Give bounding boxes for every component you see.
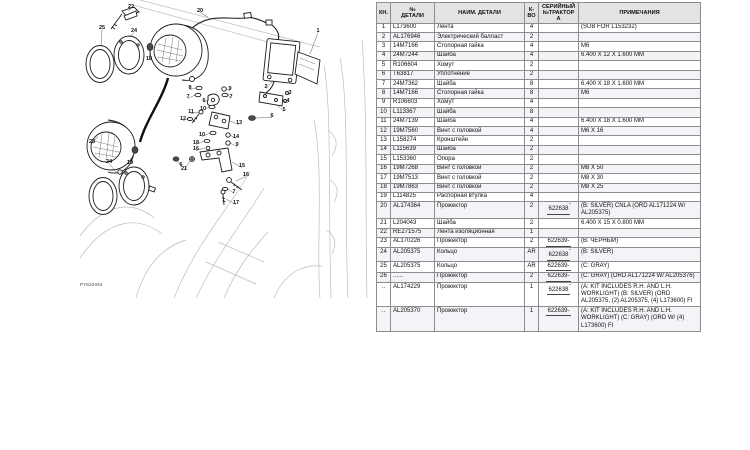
cell-part-number: AL176946	[391, 33, 435, 42]
table-row: 20AL174364Прожектор2-622638(B: SILVER) C…	[377, 202, 701, 219]
callout-leader	[101, 30, 102, 47]
cell-key: 23	[377, 237, 391, 247]
callout-16: 16	[243, 172, 249, 178]
cell-key: 1	[377, 23, 391, 32]
table-row: 15L153360Опора2	[377, 155, 701, 164]
cell-note: 6.400 X 12 X 1.600 MM	[579, 51, 701, 60]
cell-part-number: 19M7513	[391, 174, 435, 183]
cell-serial	[539, 61, 579, 70]
cell-part-name: Хомут	[435, 98, 525, 107]
cell-serial	[539, 33, 579, 42]
callout-12: 12	[180, 116, 186, 122]
cell-serial	[539, 23, 579, 32]
cell-key: 10	[377, 108, 391, 117]
cell-part-number: L114825	[391, 192, 435, 201]
table-row: 1619M7268Винт с головкой2M8 X 50	[377, 164, 701, 173]
cell-note: (C: GRAY) (ORD AL171224 W/ AL205376)	[579, 272, 701, 282]
callout-24: 24	[106, 159, 113, 165]
cell-key: 20	[377, 202, 391, 219]
cell-part-number: L153360	[391, 155, 435, 164]
cell-part-name: Винт с головкой	[435, 127, 525, 136]
cell-key: 6	[377, 70, 391, 79]
cell-serial: 622639-	[539, 272, 579, 282]
cell-qty: 2	[525, 136, 539, 145]
callout-3: 3	[288, 90, 291, 96]
cell-key: 9	[377, 98, 391, 107]
cell-part-number: ......	[391, 272, 435, 282]
cell-qty: 1	[525, 307, 539, 331]
callout-8: 8	[188, 85, 191, 91]
callout-9: 9	[235, 142, 238, 148]
callout-6: 6	[270, 113, 273, 119]
cell-part-number: 24M7139	[391, 117, 435, 126]
callout-1: 1	[316, 28, 319, 34]
cell-qty: 2	[525, 145, 539, 154]
mount-plate	[249, 92, 289, 121]
table-row: 2AL176946Электрический балласт2	[377, 33, 701, 42]
callout-24: 24	[131, 28, 138, 34]
cell-key: 15	[377, 155, 391, 164]
table-row: 10L113367Шайба8	[377, 108, 701, 117]
cell-note: M8 X 50	[579, 164, 701, 173]
cell-qty: 8	[525, 108, 539, 117]
table-row: 1219M7560Винт с головкой4M6 X 16	[377, 127, 701, 136]
cell-serial	[539, 192, 579, 201]
cell-note: (SUB FOR L153232)	[579, 23, 701, 32]
cell-serial	[539, 108, 579, 117]
table-row: 6T63817Уплотнение2	[377, 70, 701, 79]
callout-22: 22	[128, 4, 134, 10]
cell-key: 16	[377, 164, 391, 173]
bezel-ring-upper	[86, 36, 144, 83]
parts-table: КН. № ДЕТАЛИ НАИМ. ДЕТАЛИ К- ВО СЕРИЙНЫЙ…	[376, 2, 701, 332]
cell-key: 7	[377, 80, 391, 89]
cell-key: ..	[377, 283, 391, 307]
cell-part-number: T63817	[391, 70, 435, 79]
header-serial: СЕРИЙНЫЙ №ТРАКТОРА	[539, 3, 579, 24]
cell-serial	[539, 145, 579, 154]
cell-note: 6.400 X 18 X 1.600 MM	[579, 80, 701, 89]
cell-note	[579, 61, 701, 70]
callout-10: 10	[199, 132, 205, 138]
cell-note	[579, 108, 701, 117]
table-row: 19L114825Распорная втулка4	[377, 192, 701, 201]
cell-part-name: Хомут	[435, 61, 525, 70]
cell-key: 3	[377, 42, 391, 51]
callout-6: 6	[202, 98, 205, 104]
cell-part-name: Прожектор	[435, 202, 525, 219]
cell-serial	[539, 183, 579, 192]
callout-15: 15	[239, 163, 245, 169]
cell-part-name: Кольцо	[435, 248, 525, 262]
cell-serial: -622638	[539, 248, 579, 262]
cell-qty: 2	[525, 164, 539, 173]
cell-part-number: 24M7362	[391, 80, 435, 89]
cell-note: (A: KIT INCLUDES R.H. AND L.H. WORKLIGHT…	[579, 283, 701, 307]
table-row: 22RE271575Лента изоляционная1	[377, 228, 701, 237]
cell-part-name: Шайба	[435, 117, 525, 126]
cell-part-number: 24M7244	[391, 51, 435, 60]
cell-part-name: Прожектор	[435, 283, 525, 307]
cell-serial: -622638	[539, 283, 579, 307]
table-row: 1819M7863Винт с головкой2M8 X 25	[377, 183, 701, 192]
cell-qty: 4	[525, 192, 539, 201]
callout-7: 7	[229, 94, 232, 100]
cell-qty: 2	[525, 202, 539, 219]
worklight-upper	[147, 24, 208, 82]
cell-part-name: Винт с головкой	[435, 174, 525, 183]
table-row: 21L204043Шайба26.400 X 15 X 0.800 MM	[377, 219, 701, 228]
cell-key: 13	[377, 136, 391, 145]
cell-part-name: Электрический балласт	[435, 33, 525, 42]
table-row: 814M7166Стопорная гайка8M6	[377, 89, 701, 98]
cell-part-number: R106604	[391, 61, 435, 70]
cell-serial	[539, 80, 579, 89]
callout-4: 4	[286, 98, 290, 104]
cell-serial	[539, 155, 579, 164]
table-row: 1719M7513Винт с головкой2M8 X 30	[377, 174, 701, 183]
cell-part-number: R106603	[391, 98, 435, 107]
cell-part-number: AL205375	[391, 262, 435, 272]
fastener-stack	[173, 86, 242, 205]
cell-part-number: L173600	[391, 23, 435, 32]
cell-part-name: Шайба	[435, 219, 525, 228]
cell-qty: 2	[525, 61, 539, 70]
cell-note: (C: GRAY)	[579, 262, 701, 272]
cell-note: (B: SILVER) CNLA (ORD AL171224 W/ AL2053…	[579, 202, 701, 219]
cell-part-number: L113367	[391, 108, 435, 117]
cell-note	[579, 70, 701, 79]
image-code: PY622064	[80, 282, 103, 287]
cell-part-number: 19M7268	[391, 164, 435, 173]
cell-part-name: Шайба	[435, 145, 525, 154]
cell-part-number: AL205375	[391, 248, 435, 262]
cell-serial: 622639-	[539, 237, 579, 247]
cell-key: 11	[377, 117, 391, 126]
cell-part-name: Кольцо	[435, 262, 525, 272]
header-part-name: НАИМ. ДЕТАЛИ	[435, 3, 525, 24]
callout-21: 21	[181, 166, 187, 172]
cell-qty: 8	[525, 80, 539, 89]
callout-17: 17	[233, 200, 239, 206]
cell-qty: 8	[525, 89, 539, 98]
callout-10: 10	[200, 106, 206, 112]
cell-part-number: AL174229	[391, 283, 435, 307]
table-row: 13L158274Кронштейн2	[377, 136, 701, 145]
cell-part-name: Винт с головкой	[435, 164, 525, 173]
cell-part-name: Уплотнение	[435, 70, 525, 79]
table-row: 5R106604Хомут2	[377, 61, 701, 70]
cell-qty: 4	[525, 117, 539, 126]
cell-part-number: 19M7560	[391, 127, 435, 136]
cell-part-number: L115639	[391, 145, 435, 154]
cell-part-name: Прожектор	[435, 237, 525, 247]
cell-serial: -622638	[539, 202, 579, 219]
cell-part-name: Лента	[435, 23, 525, 32]
header-part-number: № ДЕТАЛИ	[391, 3, 435, 24]
cell-note	[579, 136, 701, 145]
ballast-panel	[295, 52, 320, 84]
cell-note: M6	[579, 42, 701, 51]
table-row: 424M7244Шайба46.400 X 12 X 1.600 MM	[377, 51, 701, 60]
cell-part-number: 19M7863	[391, 183, 435, 192]
cell-key: 18	[377, 183, 391, 192]
table-row: 24AL205375КольцоAR-622638(B: SILVER)	[377, 248, 701, 262]
table-row: 1124M7139Шайба46.400 X 18 X 1.600 MM	[377, 117, 701, 126]
cell-part-name: Прожектор	[435, 307, 525, 331]
cell-part-name: Стопорная гайка	[435, 42, 525, 51]
cell-part-name: Опора	[435, 155, 525, 164]
table-row: 23AL170226Прожектор2622639-(B: ЧЕРНЫЙ)	[377, 237, 701, 247]
cell-key: 5	[377, 61, 391, 70]
cell-note: 6.400 X 15 X 0.800 MM	[579, 219, 701, 228]
callout-20: 20	[197, 8, 203, 14]
callout-9: 9	[228, 86, 231, 92]
cell-qty: 2	[525, 33, 539, 42]
table-row: 314M7166Стопорная гайка4M6	[377, 42, 701, 51]
table-row: 26......Прожектор2622639-(C: GRAY) (ORD …	[377, 272, 701, 282]
cell-key: 4	[377, 51, 391, 60]
cell-qty: 2	[525, 155, 539, 164]
cell-part-number: RE271575	[391, 228, 435, 237]
cell-note: (B: SILVER)	[579, 248, 701, 262]
table-row: ..AL174229Прожектор1-622638(A: KIT INCLU…	[377, 283, 701, 307]
callout-25: 25	[99, 25, 105, 31]
header-notes: ПРИМЕЧАНИЯ	[579, 3, 701, 24]
cell-part-name: Стопорная гайка	[435, 89, 525, 98]
table-header-row: КН. № ДЕТАЛИ НАИМ. ДЕТАЛИ К- ВО СЕРИЙНЫЙ…	[377, 3, 701, 24]
callout-19: 19	[146, 56, 152, 62]
cell-part-name: Прожектор	[435, 272, 525, 282]
cell-key: 8	[377, 89, 391, 98]
callout-16: 16	[193, 146, 199, 152]
cell-key: 2	[377, 33, 391, 42]
cell-qty: 1	[525, 228, 539, 237]
cell-key: 25	[377, 262, 391, 272]
cell-qty: 2	[525, 174, 539, 183]
cell-note: (B: ЧЕРНЫЙ)	[579, 237, 701, 247]
cell-serial	[539, 228, 579, 237]
callout-19: 19	[127, 160, 133, 166]
cell-serial	[539, 98, 579, 107]
cell-key: 24	[377, 248, 391, 262]
callout-2: 2	[264, 84, 267, 90]
table-row: 25AL205375КольцоAR622639-(C: GRAY)	[377, 262, 701, 272]
cell-key: 14	[377, 145, 391, 154]
cell-key: 21	[377, 219, 391, 228]
callout-7: 7	[186, 94, 189, 100]
callout-23: 23	[89, 139, 95, 145]
cell-note: M8 X 30	[579, 174, 701, 183]
cell-serial	[539, 219, 579, 228]
cell-note: (A: KIT INCLUDES R.H. AND L.H. WORKLIGHT…	[579, 307, 701, 331]
cell-serial: 622639-	[539, 262, 579, 272]
cell-qty: 2	[525, 272, 539, 282]
cell-note: M6 X 16	[579, 127, 701, 136]
cell-qty: 2	[525, 70, 539, 79]
cell-part-name: Шайба	[435, 51, 525, 60]
cell-serial	[539, 164, 579, 173]
cell-qty: 2	[525, 183, 539, 192]
cell-note	[579, 33, 701, 42]
cell-key: 12	[377, 127, 391, 136]
cell-qty: 4	[525, 51, 539, 60]
cell-note: M6	[579, 89, 701, 98]
cell-key: ..	[377, 307, 391, 331]
cell-key: 26	[377, 272, 391, 282]
cell-part-name: Кронштейн	[435, 136, 525, 145]
cell-serial	[539, 127, 579, 136]
cell-qty: 2	[525, 237, 539, 247]
callout-leader	[310, 33, 318, 55]
cell-part-number: L158274	[391, 136, 435, 145]
cell-serial	[539, 89, 579, 98]
cell-part-number: AL174364	[391, 202, 435, 219]
callout-11: 11	[188, 109, 194, 115]
worklight-lower	[87, 120, 138, 174]
header-key: КН.	[377, 3, 391, 24]
table-row: ..AL205370Прожектор1622639-(A: KIT INCLU…	[377, 307, 701, 331]
callout-14: 14	[233, 134, 240, 140]
cell-key: 22	[377, 228, 391, 237]
cell-note	[579, 98, 701, 107]
cell-qty: 2	[525, 219, 539, 228]
cell-key: 17	[377, 174, 391, 183]
cell-note: M8 X 25	[579, 183, 701, 192]
cell-note	[579, 192, 701, 201]
exploded-view-diagram: 2220252419123456897761011121310149181662…	[78, 0, 378, 300]
callout-5: 5	[282, 107, 285, 113]
cell-part-name: Лента изоляционная	[435, 228, 525, 237]
cell-part-name: Шайба	[435, 80, 525, 89]
cell-qty: 4	[525, 127, 539, 136]
cell-serial	[539, 174, 579, 183]
callout-7: 7	[232, 189, 235, 195]
cell-part-number: L204043	[391, 219, 435, 228]
parts-catalog-page: 2220252419123456897761011121310149181662…	[0, 0, 750, 450]
cell-serial	[539, 136, 579, 145]
cell-part-name: Шайба	[435, 108, 525, 117]
cell-note	[579, 155, 701, 164]
header-qty: К- ВО	[525, 3, 539, 24]
cell-qty: 4	[525, 23, 539, 32]
cell-qty: 1	[525, 283, 539, 307]
cell-part-number: 14M7166	[391, 89, 435, 98]
cell-serial	[539, 51, 579, 60]
cell-key: 19	[377, 192, 391, 201]
cell-qty: AR	[525, 248, 539, 262]
table-row: 724M7362Шайба86.400 X 18 X 1.600 MM	[377, 80, 701, 89]
cell-qty: 4	[525, 42, 539, 51]
cell-serial	[539, 42, 579, 51]
ballast-box	[263, 38, 300, 83]
cell-note	[579, 145, 701, 154]
cell-part-name: Распорная втулка	[435, 192, 525, 201]
cell-part-number: 14M7166	[391, 42, 435, 51]
cell-qty: AR	[525, 262, 539, 272]
cell-note: 6.400 X 18 X 1.600 MM	[579, 117, 701, 126]
connector-part	[111, 7, 139, 29]
table-row: 9R106603Хомут4	[377, 98, 701, 107]
cell-serial	[539, 70, 579, 79]
cell-part-name: Винт с головкой	[435, 183, 525, 192]
callout-13: 13	[236, 120, 242, 126]
cell-serial	[539, 117, 579, 126]
table-row: 1L173600Лента4(SUB FOR L153232)	[377, 23, 701, 32]
cell-serial: 622639-	[539, 307, 579, 331]
cell-qty: 4	[525, 98, 539, 107]
cell-part-number: AL170226	[391, 237, 435, 247]
cell-note	[579, 228, 701, 237]
table-row: 14L115639Шайба2	[377, 145, 701, 154]
cell-part-number: AL205370	[391, 307, 435, 331]
